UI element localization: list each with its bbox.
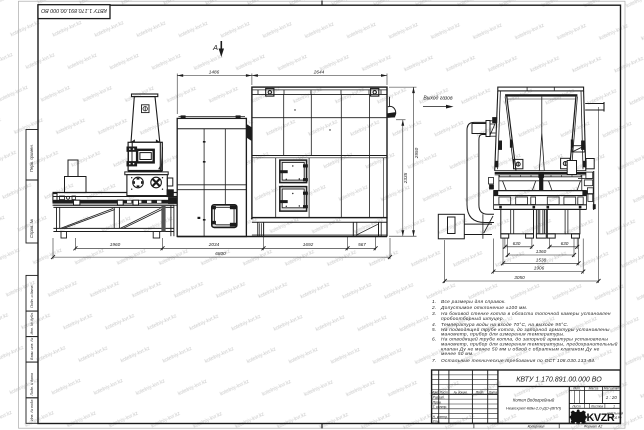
svg-text:Формат А2: Формат А2: [584, 425, 603, 429]
svg-text:Инв. № подл.: Инв. № подл.: [30, 399, 34, 421]
svg-text:Т. контр.: Т. контр.: [433, 405, 448, 409]
svg-text:1960: 1960: [110, 242, 121, 247]
svg-text:Изм.: Изм.: [432, 390, 439, 394]
svg-text:Листов: Листов: [590, 404, 603, 408]
svg-text:№ докум.: № докум.: [454, 390, 468, 394]
svg-text:1: 1: [613, 404, 615, 408]
svg-text:3.: 3.: [432, 311, 437, 317]
svg-text:567: 567: [358, 242, 366, 247]
svg-text:1360: 1360: [536, 249, 547, 254]
svg-text:Дата: Дата: [488, 390, 498, 394]
svg-text:КВТУ 1.170.891.00.000 ВО: КВТУ 1.170.891.00.000 ВО: [516, 376, 602, 383]
svg-text:Лист: Лист: [571, 404, 581, 408]
svg-text:3050: 3050: [514, 275, 525, 280]
svg-text:Выход газов: Выход газов: [423, 96, 453, 102]
svg-text:Масса: Масса: [589, 387, 599, 391]
svg-text:Котел Водогрейный: Котел Водогрейный: [513, 398, 555, 403]
svg-text:Подп. и дата: Подп. и дата: [30, 286, 34, 309]
svg-text:1486: 1486: [209, 70, 220, 75]
svg-text:1692: 1692: [303, 242, 314, 247]
svg-text:Справ. №: Справ. №: [29, 219, 34, 238]
svg-text:пробоотборный штуцер.: пробоотборный штуцер.: [441, 315, 504, 322]
svg-text:КВТУ 1.170.891.00.000 ВО: КВТУ 1.170.891.00.000 ВО: [40, 7, 107, 13]
svg-text:Остальные технические требован: Остальные технические требования по ОСТ …: [441, 358, 596, 364]
svg-text:Heatexpert-КВм-2,0-ДО-(ВПЛ): Heatexpert-КВм-2,0-ДО-(ВПЛ): [506, 406, 562, 411]
svg-text:Все размеры для справок.: Все размеры для справок.: [441, 299, 506, 305]
svg-text:Перв. примен.: Перв. примен.: [29, 144, 34, 172]
svg-text:Копировал: Копировал: [528, 425, 545, 429]
svg-text:6800: 6800: [215, 251, 226, 256]
svg-text:Утв.: Утв.: [433, 420, 441, 424]
svg-text:5.: 5.: [432, 327, 437, 333]
svg-text:2950: 2950: [414, 147, 419, 159]
svg-text:Масштаб: Масштаб: [604, 387, 620, 391]
svg-text:2335: 2335: [403, 172, 408, 184]
svg-text:Подп.: Подп.: [476, 390, 485, 394]
svg-text:1.: 1.: [432, 299, 437, 305]
svg-text:ЗАВОД РФ: ЗАВОД РФ: [608, 415, 621, 419]
svg-text:630: 630: [561, 241, 569, 246]
svg-text:6.: 6.: [432, 337, 437, 343]
svg-text:Допустимое отклонение ±100 мм.: Допустимое отклонение ±100 мм.: [440, 305, 528, 311]
svg-text:1538: 1538: [536, 257, 547, 262]
svg-text:Разраб.: Разраб.: [433, 395, 445, 399]
svg-text:А: А: [212, 43, 218, 52]
svg-text:Подп. и дата: Подп. и дата: [30, 373, 34, 396]
svg-text:Лист: Лист: [439, 390, 449, 394]
svg-text:Лит.: Лит.: [572, 387, 581, 391]
svg-text:менее 50 мм.: менее 50 мм.: [441, 351, 474, 357]
svg-text:На боковой стенке котла в обла: На боковой стенке котла в области топочн…: [441, 310, 611, 317]
svg-text:Пров.: Пров.: [433, 400, 442, 404]
svg-text:7.: 7.: [432, 358, 437, 364]
svg-text:2034: 2034: [208, 242, 220, 247]
svg-text:Инв. № дубл.: Инв. № дубл.: [30, 312, 34, 334]
svg-text:1906: 1906: [534, 266, 545, 271]
svg-text:Н. контр.: Н. контр.: [433, 415, 448, 419]
svg-text:КОТЕЛЬНЫЙ: КОТЕЛЬНЫЙ: [607, 412, 623, 416]
svg-text:630: 630: [513, 241, 521, 246]
svg-text:Взам. инв. №: Взам. инв. №: [30, 338, 34, 360]
svg-text:2.: 2.: [431, 305, 437, 311]
svg-text:1 : 20: 1 : 20: [606, 395, 618, 400]
svg-text:2644: 2644: [313, 70, 325, 75]
